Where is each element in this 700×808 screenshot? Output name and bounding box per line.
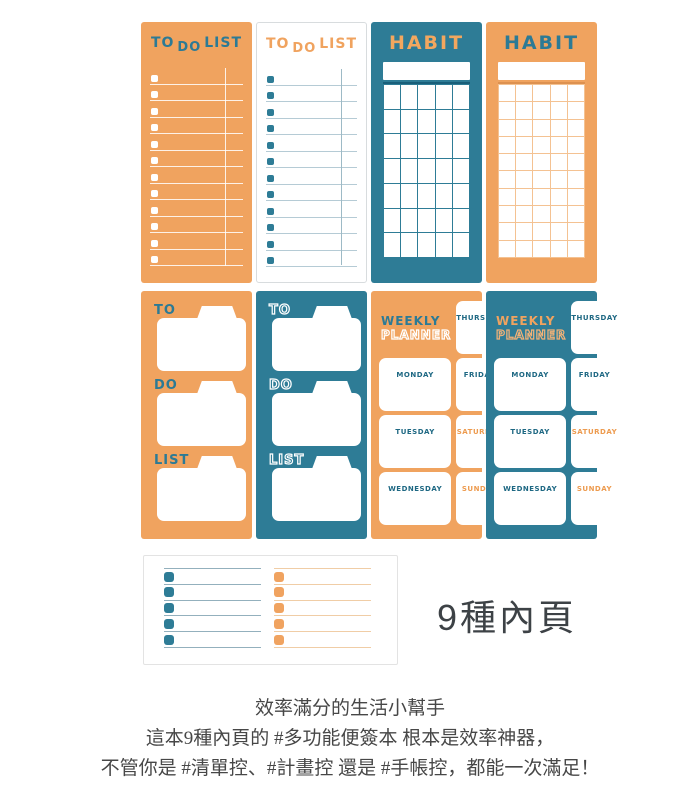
folder-label: LIST [269,453,304,468]
habit-grid-cell [401,110,417,134]
habit-grid-cell [418,209,434,233]
list-preview-card [143,555,398,665]
title-weekly: WEEKLY [496,314,566,328]
habit-grid-cell [384,134,400,158]
day-box-monday: MONDAY [379,358,451,411]
todo-row [266,119,357,136]
habit-title: HABIT [486,22,597,54]
habit-grid-cell [436,233,452,257]
habit-grid-cell [533,120,549,136]
checkbox-icon [151,141,158,148]
title-weekly: WEEKLY [381,314,451,328]
checkbox-icon [151,223,158,230]
checkbox-icon [164,572,174,582]
habit-grid-cell [516,241,532,257]
todo-row [150,217,243,234]
habit-tracker-pad-teal: HABIT [371,22,482,283]
habit-grid-cell [499,102,515,118]
habit-grid-cell [401,209,417,233]
habit-grid-cell [401,184,417,208]
day-label: TUESDAY [510,428,549,436]
checkbox-icon [151,75,158,82]
day-label: MONDAY [396,371,433,379]
folder-body [272,393,361,446]
checkbox-icon [164,587,174,597]
habit-grid-cell [418,233,434,257]
habit-grid-cell [499,154,515,170]
habit-grid-cell [384,159,400,183]
folder-section-to: TO [141,304,252,379]
folder-pad-teal: TO DO LIST [256,291,367,539]
habit-grid-cell [568,206,584,222]
product-description: 效率滿分的生活小幫手 這本9種內頁的 #多功能便簽本 根本是效率神器， 不管你是… [0,694,700,784]
checkbox-icon [151,91,158,98]
day-box-tuesday: TUESDAY [494,415,566,468]
todo-row [266,218,357,235]
habit-grid-cell [568,223,584,239]
todo-row [266,102,357,119]
habit-grid-cell [568,137,584,153]
title-word-do: DO [292,41,316,56]
habit-grid-cell [384,233,400,257]
title-word-to: TO [266,36,289,52]
checkbox-icon [151,124,158,131]
habit-grid-cell [568,85,584,101]
todo-row [150,68,243,85]
todo-row [266,86,357,103]
checklist-row [274,600,371,616]
margin-rule-line [225,68,226,266]
habit-grid-cell [499,241,515,257]
habit-grid-cell [453,110,469,134]
day-label: FRIDAY [579,371,610,379]
habit-grid-cell [499,171,515,187]
checklist-row [274,615,371,631]
habit-grid-cell [436,184,452,208]
todo-list-title: TODOLIST [141,22,252,51]
habit-grid-cell [551,85,567,101]
weekly-right-column: THURSDAY FRIDAY SATURDAY SUNDAY [571,301,617,539]
habit-grid-cell [499,120,515,136]
checkbox-icon [267,241,274,248]
checklist-column-orange [274,568,371,648]
checklist-row [164,631,261,647]
todo-row [150,118,243,135]
habit-grid-cell [533,206,549,222]
habit-grid-cell [551,137,567,153]
habit-grid-cell [533,85,549,101]
todo-row [266,152,357,169]
habit-grid-cell [384,209,400,233]
checkbox-icon [274,635,284,645]
folder-label: LIST [154,453,189,468]
habit-grid-cell [384,110,400,134]
todo-row [150,250,243,267]
checkbox-icon [267,158,274,165]
habit-grid-cell [551,154,567,170]
habit-grid [383,82,470,258]
checklist-row [164,584,261,600]
day-label: MONDAY [511,371,548,379]
habit-grid-cell [516,137,532,153]
habit-grid-cell [516,85,532,101]
todo-row [150,200,243,217]
habit-grid-cell [453,159,469,183]
habit-grid-cell [401,134,417,158]
checklist-column-teal [164,568,261,648]
habit-grid-cell [533,154,549,170]
folder-body [157,318,246,371]
folder-label: DO [269,378,293,393]
checklist-row [164,568,261,584]
folder-section-do: DO [141,379,252,454]
todo-row [150,167,243,184]
habit-grid-cell [436,209,452,233]
checkbox-icon [151,256,158,263]
todo-row [266,234,357,251]
checkbox-icon [267,175,274,182]
weekly-left-column: WEEKLY PLANNER MONDAY TUESDAY WEDNESDAY [379,301,451,539]
habit-grid-cell [551,223,567,239]
checkbox-icon [151,240,158,247]
habit-grid-cell [551,102,567,118]
day-box-thursday: THURSDAY [571,301,617,354]
todo-row [150,184,243,201]
folder-label: TO [269,303,291,318]
habit-grid-cell [551,189,567,205]
day-label: TUESDAY [395,428,434,436]
todo-row [266,135,357,152]
habit-grid-cell [401,159,417,183]
folder-body [272,318,361,371]
title-word-list: LIST [319,36,357,52]
folder-label: DO [154,378,178,393]
habit-grid-cell [453,134,469,158]
habit-grid-cell [516,120,532,136]
habit-grid-cell [516,102,532,118]
habit-grid-cell [551,120,567,136]
checkbox-icon [267,224,274,231]
habit-grid-cell [436,85,452,109]
habit-header-bar [498,62,585,80]
habit-grid-cell [453,184,469,208]
weekly-planner-title: WEEKLY PLANNER [379,301,451,354]
habit-grid-cell [551,241,567,257]
description-line-1: 效率滿分的生活小幫手 [0,694,700,724]
habit-grid-cell [499,223,515,239]
day-label: THURSDAY [571,314,617,322]
checklist-row [274,584,371,600]
todo-list-title: TODOLIST [257,23,366,52]
weekly-planner-pad-orange: WEEKLY PLANNER MONDAY TUESDAY WEDNESDAY … [371,291,482,539]
checkbox-icon [267,208,274,215]
folder-pad-orange: TO DO LIST [141,291,252,539]
habit-grid-cell [533,241,549,257]
checkbox-icon [267,76,274,83]
day-label: WEDNESDAY [503,485,557,493]
checklist-row [274,631,371,647]
checkbox-icon [164,635,174,645]
product-detail-image: TODOLIST TODOLIST HABIT HABIT TO DO LIST [0,0,700,808]
habit-grid-cell [533,223,549,239]
habit-grid-cell [418,85,434,109]
weekly-planner-pad-teal: WEEKLY PLANNER MONDAY TUESDAY WEDNESDAY … [486,291,597,539]
weekly-left-column: WEEKLY PLANNER MONDAY TUESDAY WEDNESDAY [494,301,566,539]
title-word-list: LIST [204,35,242,51]
habit-grid-cell [568,154,584,170]
todo-row [266,69,357,86]
habit-grid-cell [568,120,584,136]
habit-grid-cell [516,223,532,239]
habit-grid-cell [499,85,515,101]
folder-section-list: LIST [141,454,252,529]
habit-grid-cell [384,184,400,208]
checklist-row [274,568,371,584]
day-box-friday: FRIDAY [571,358,617,411]
habit-title: HABIT [371,22,482,54]
checkbox-icon [267,125,274,132]
todo-row [266,168,357,185]
checkbox-icon [151,190,158,197]
page-count-caption: 9種內頁 [437,589,577,641]
day-label: WEDNESDAY [388,485,442,493]
checklist-row [164,615,261,631]
checkbox-icon [151,108,158,115]
habit-header-bar [383,62,470,80]
habit-grid-cell [436,110,452,134]
habit-grid-cell [533,137,549,153]
weekly-planner-title: WEEKLY PLANNER [494,301,566,354]
todo-row [266,201,357,218]
habit-grid-cell [533,189,549,205]
checklist-row [164,600,261,616]
todo-row [150,134,243,151]
habit-grid-cell [551,206,567,222]
todo-row [150,233,243,250]
checkbox-icon [267,109,274,116]
day-box-saturday: SATURDAY [571,415,617,468]
day-box-wednesday: WEDNESDAY [494,472,566,525]
day-label: SUNDAY [577,485,612,493]
checkbox-icon [267,191,274,198]
habit-grid-cell [516,206,532,222]
title-planner: PLANNER [381,328,451,342]
folder-section-list: LIST [256,454,367,529]
checkbox-icon [274,619,284,629]
folder-section-do: DO [256,379,367,454]
day-box-sunday: SUNDAY [571,472,617,525]
folder-body [272,468,361,521]
habit-grid [498,82,585,258]
todo-list-pad-white: TODOLIST [256,22,367,283]
day-label: SATURDAY [572,428,617,436]
habit-grid-cell [453,85,469,109]
checkbox-icon [274,572,284,582]
habit-grid-cell [516,189,532,205]
margin-rule-line [341,69,342,265]
description-line-2: 這本9種內頁的 #多功能便簽本 根本是效率神器， [0,724,700,754]
habit-grid-cell [499,137,515,153]
folder-body [157,393,246,446]
todo-row [150,101,243,118]
folder-label: TO [154,303,176,318]
title-word-to: TO [151,35,174,51]
habit-grid-cell [453,209,469,233]
habit-grid-cell [418,159,434,183]
habit-grid-cell [418,184,434,208]
habit-grid-cell [499,206,515,222]
todo-lines [150,68,243,266]
habit-grid-cell [418,110,434,134]
habit-grid-cell [568,241,584,257]
habit-grid-cell [516,154,532,170]
habit-grid-cell [418,134,434,158]
habit-grid-cell [533,102,549,118]
title-planner: PLANNER [496,328,566,342]
todo-row [150,151,243,168]
todo-lines [266,69,357,267]
habit-grid-cell [384,85,400,109]
checkbox-icon [151,207,158,214]
habit-grid-cell [568,102,584,118]
title-word-do: DO [177,40,201,55]
checkbox-icon [274,587,284,597]
checkbox-icon [267,257,274,264]
habit-grid-cell [499,189,515,205]
checkbox-icon [151,157,158,164]
day-box-monday: MONDAY [494,358,566,411]
checkbox-icon [267,142,274,149]
checkbox-icon [274,603,284,613]
habit-grid-cell [568,189,584,205]
description-line-3: 不管你是 #清單控、#計畫控 還是 #手帳控，都能一次滿足！ [0,754,700,784]
todo-row [266,185,357,202]
todo-row [266,251,357,268]
day-box-tuesday: TUESDAY [379,415,451,468]
folder-section-to: TO [256,304,367,379]
habit-grid-cell [568,171,584,187]
folder-body [157,468,246,521]
day-box-wednesday: WEDNESDAY [379,472,451,525]
habit-grid-cell [436,134,452,158]
habit-grid-cell [401,85,417,109]
habit-grid-cell [453,233,469,257]
checkbox-icon [164,619,174,629]
todo-row [150,85,243,102]
habit-grid-cell [533,171,549,187]
todo-list-pad-orange: TODOLIST [141,22,252,283]
habit-grid-cell [516,171,532,187]
habit-tracker-pad-orange: HABIT [486,22,597,283]
checkbox-icon [164,603,174,613]
checkbox-icon [267,92,274,99]
checkbox-icon [151,174,158,181]
habit-grid-cell [551,171,567,187]
habit-grid-cell [401,233,417,257]
habit-grid-cell [436,159,452,183]
